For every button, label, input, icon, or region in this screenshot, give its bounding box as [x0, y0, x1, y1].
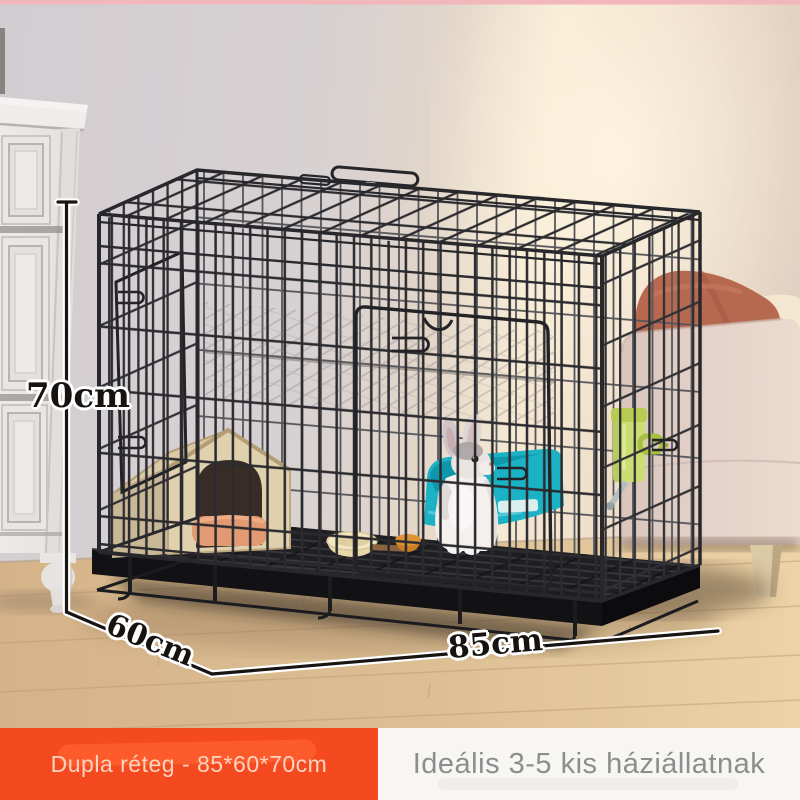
- banner-left-panel: Dupla réteg - 85*60*70cm: [0, 728, 378, 800]
- product-image: 70cm 60cm 85cm Dupla réteg - 85*60*70cm …: [0, 0, 800, 800]
- accent-strip: [0, 0, 800, 5]
- width-dimension-label: 85cm: [447, 625, 544, 664]
- banner-right-panel: Ideális 3-5 kis háziállatnak: [378, 728, 800, 800]
- banner-left-text: Dupla réteg - 85*60*70cm: [51, 751, 328, 778]
- height-dimension-label: 70cm: [26, 379, 130, 413]
- cage-right-face: [602, 212, 700, 601]
- pet-cage: [92, 166, 700, 643]
- cage-front-face: [99, 214, 602, 601]
- info-banner: Dupla réteg - 85*60*70cm Ideális 3-5 kis…: [0, 728, 800, 800]
- banner-right-text: Ideális 3-5 kis háziállatnak: [413, 748, 766, 781]
